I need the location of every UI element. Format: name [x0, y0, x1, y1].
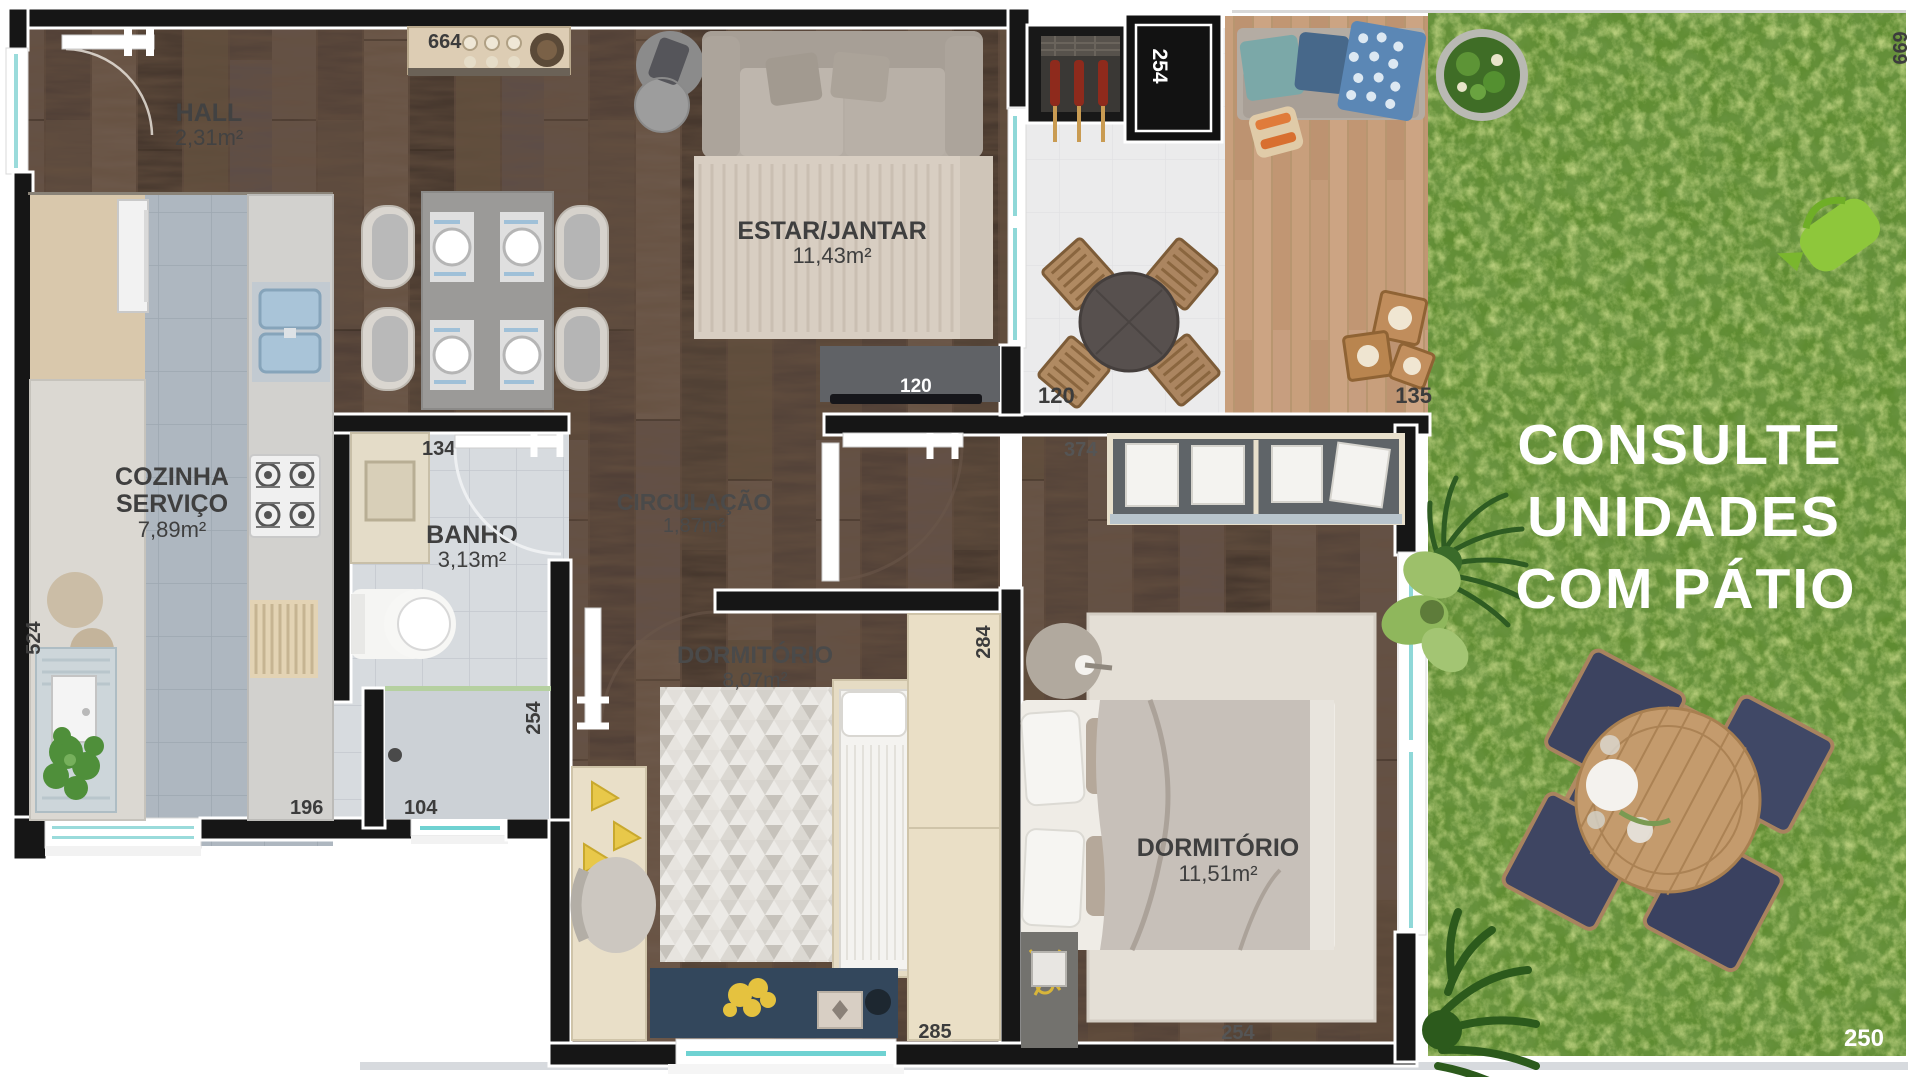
svg-text:254: 254	[523, 700, 545, 734]
svg-text:254: 254	[1148, 48, 1171, 83]
svg-text:524: 524	[23, 620, 45, 654]
svg-text:664: 664	[428, 31, 462, 53]
svg-text:120: 120	[900, 376, 932, 397]
svg-text:135: 135	[1395, 383, 1432, 408]
svg-text:BANHO: BANHO	[426, 521, 518, 549]
svg-text:COM PÁTIO: COM PÁTIO	[1516, 557, 1857, 621]
svg-text:CIRCULAÇÃO: CIRCULAÇÃO	[617, 488, 772, 515]
svg-text:UNIDADES: UNIDADES	[1527, 485, 1841, 549]
svg-text:120: 120	[1038, 383, 1075, 408]
svg-text:104: 104	[404, 797, 438, 819]
svg-text:285: 285	[918, 1021, 951, 1043]
svg-text:250: 250	[1844, 1025, 1884, 1052]
svg-text:11,51m²: 11,51m²	[1178, 861, 1257, 886]
svg-text:7,89m²: 7,89m²	[138, 517, 206, 542]
svg-text:HALL: HALL	[176, 99, 243, 127]
svg-text:254: 254	[1221, 1022, 1255, 1044]
svg-text:CONSULTE: CONSULTE	[1517, 413, 1842, 477]
svg-text:3,13m²: 3,13m²	[438, 547, 506, 572]
svg-text:COZINHA: COZINHA	[115, 463, 229, 491]
svg-text:2,31m²: 2,31m²	[175, 125, 243, 150]
svg-text:DORMITÓRIO: DORMITÓRIO	[677, 641, 833, 669]
svg-text:11,43m²: 11,43m²	[792, 243, 871, 268]
svg-text:SERVIÇO: SERVIÇO	[116, 490, 228, 518]
svg-text:ESTAR/JANTAR: ESTAR/JANTAR	[737, 217, 926, 245]
svg-text:1,87m²: 1,87m²	[663, 515, 726, 537]
svg-text:134: 134	[422, 438, 456, 460]
svg-text:196: 196	[290, 797, 323, 819]
svg-text:284: 284	[973, 624, 995, 658]
svg-text:699: 699	[1888, 31, 1910, 64]
svg-text:DORMITÓRIO: DORMITÓRIO	[1137, 832, 1300, 862]
svg-text:8,07m²: 8,07m²	[722, 669, 787, 692]
svg-text:374: 374	[1064, 439, 1098, 461]
